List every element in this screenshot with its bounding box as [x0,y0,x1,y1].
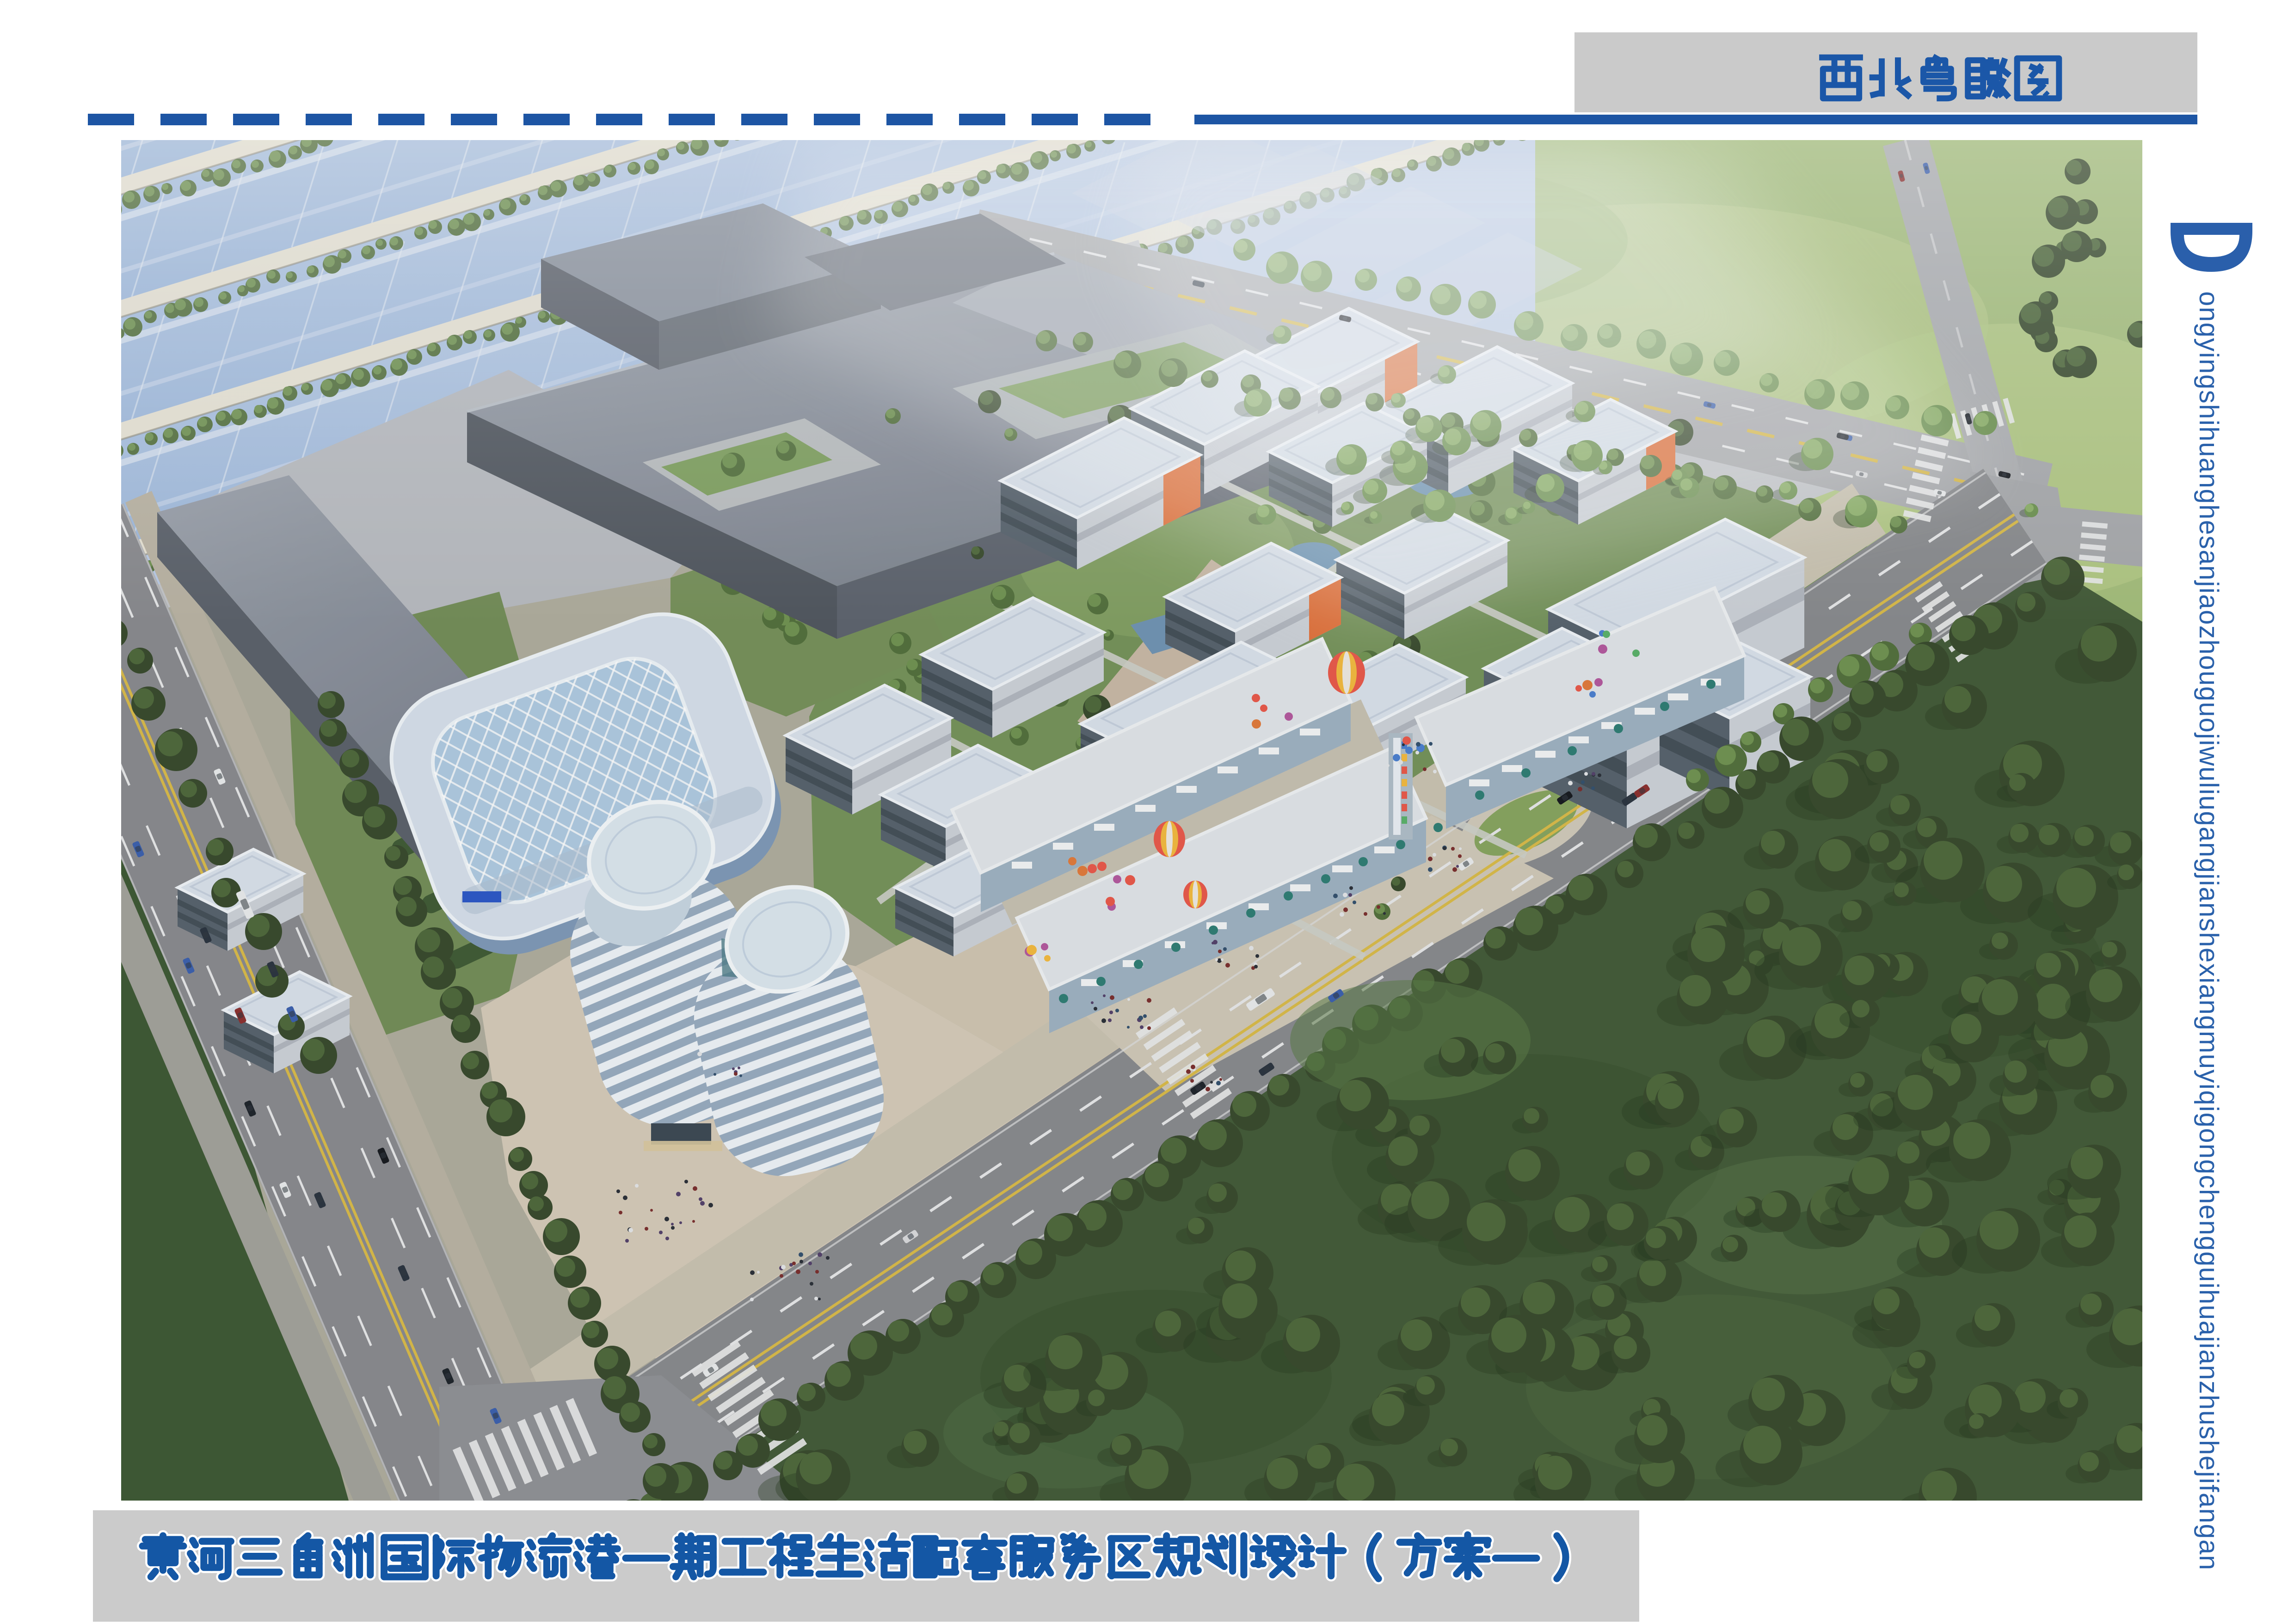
svg-text:ongyingshihuanghesanjiaozhougu: ongyingshihuanghesanjiaozhouguojiwuliuga… [2194,291,2224,1571]
